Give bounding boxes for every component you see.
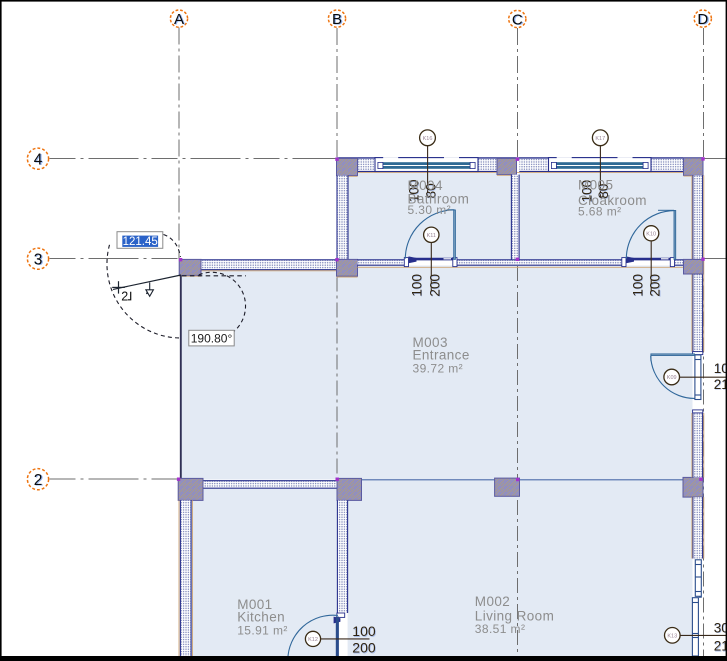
svg-text:K11: K11 <box>427 233 436 239</box>
svg-text:100: 100 <box>630 274 645 297</box>
svg-text:3: 3 <box>34 251 43 268</box>
svg-text:200: 200 <box>427 274 442 297</box>
svg-text:Entrance: Entrance <box>413 348 470 363</box>
svg-text:39.72 m²: 39.72 m² <box>413 362 464 376</box>
svg-text:D: D <box>697 11 708 28</box>
svg-text:M002: M002 <box>475 594 510 609</box>
svg-text:K12: K12 <box>308 637 318 643</box>
svg-text:100: 100 <box>409 274 424 297</box>
svg-text:K16: K16 <box>423 136 433 142</box>
svg-text:15.91 m²: 15.91 m² <box>237 624 288 638</box>
svg-text:5.68 m²: 5.68 m² <box>578 204 621 218</box>
svg-text:4: 4 <box>34 151 43 168</box>
svg-text:C: C <box>512 11 523 28</box>
svg-text:K10: K10 <box>646 231 656 237</box>
svg-text:2: 2 <box>121 290 128 304</box>
svg-text:2: 2 <box>34 472 43 489</box>
svg-text:121.45: 121.45 <box>123 236 158 248</box>
svg-text:K17: K17 <box>595 136 605 142</box>
svg-text:5.30 m²: 5.30 m² <box>408 203 451 217</box>
svg-text:210: 210 <box>714 639 727 654</box>
svg-text:200: 200 <box>648 274 663 297</box>
svg-text:38.51 m²: 38.51 m² <box>475 622 526 636</box>
svg-text:190.80°: 190.80° <box>191 332 233 346</box>
svg-text:M005: M005 <box>578 178 613 193</box>
svg-text:K09: K09 <box>667 375 677 381</box>
svg-text:A: A <box>174 11 184 28</box>
svg-text:100: 100 <box>352 623 376 639</box>
svg-text:300: 300 <box>714 621 727 636</box>
svg-text:210: 210 <box>714 377 727 392</box>
svg-text:Kitchen: Kitchen <box>237 610 285 625</box>
svg-text:100: 100 <box>714 361 727 376</box>
svg-text:K13: K13 <box>667 633 677 639</box>
svg-text:200: 200 <box>352 640 376 656</box>
svg-text:B: B <box>332 11 342 28</box>
